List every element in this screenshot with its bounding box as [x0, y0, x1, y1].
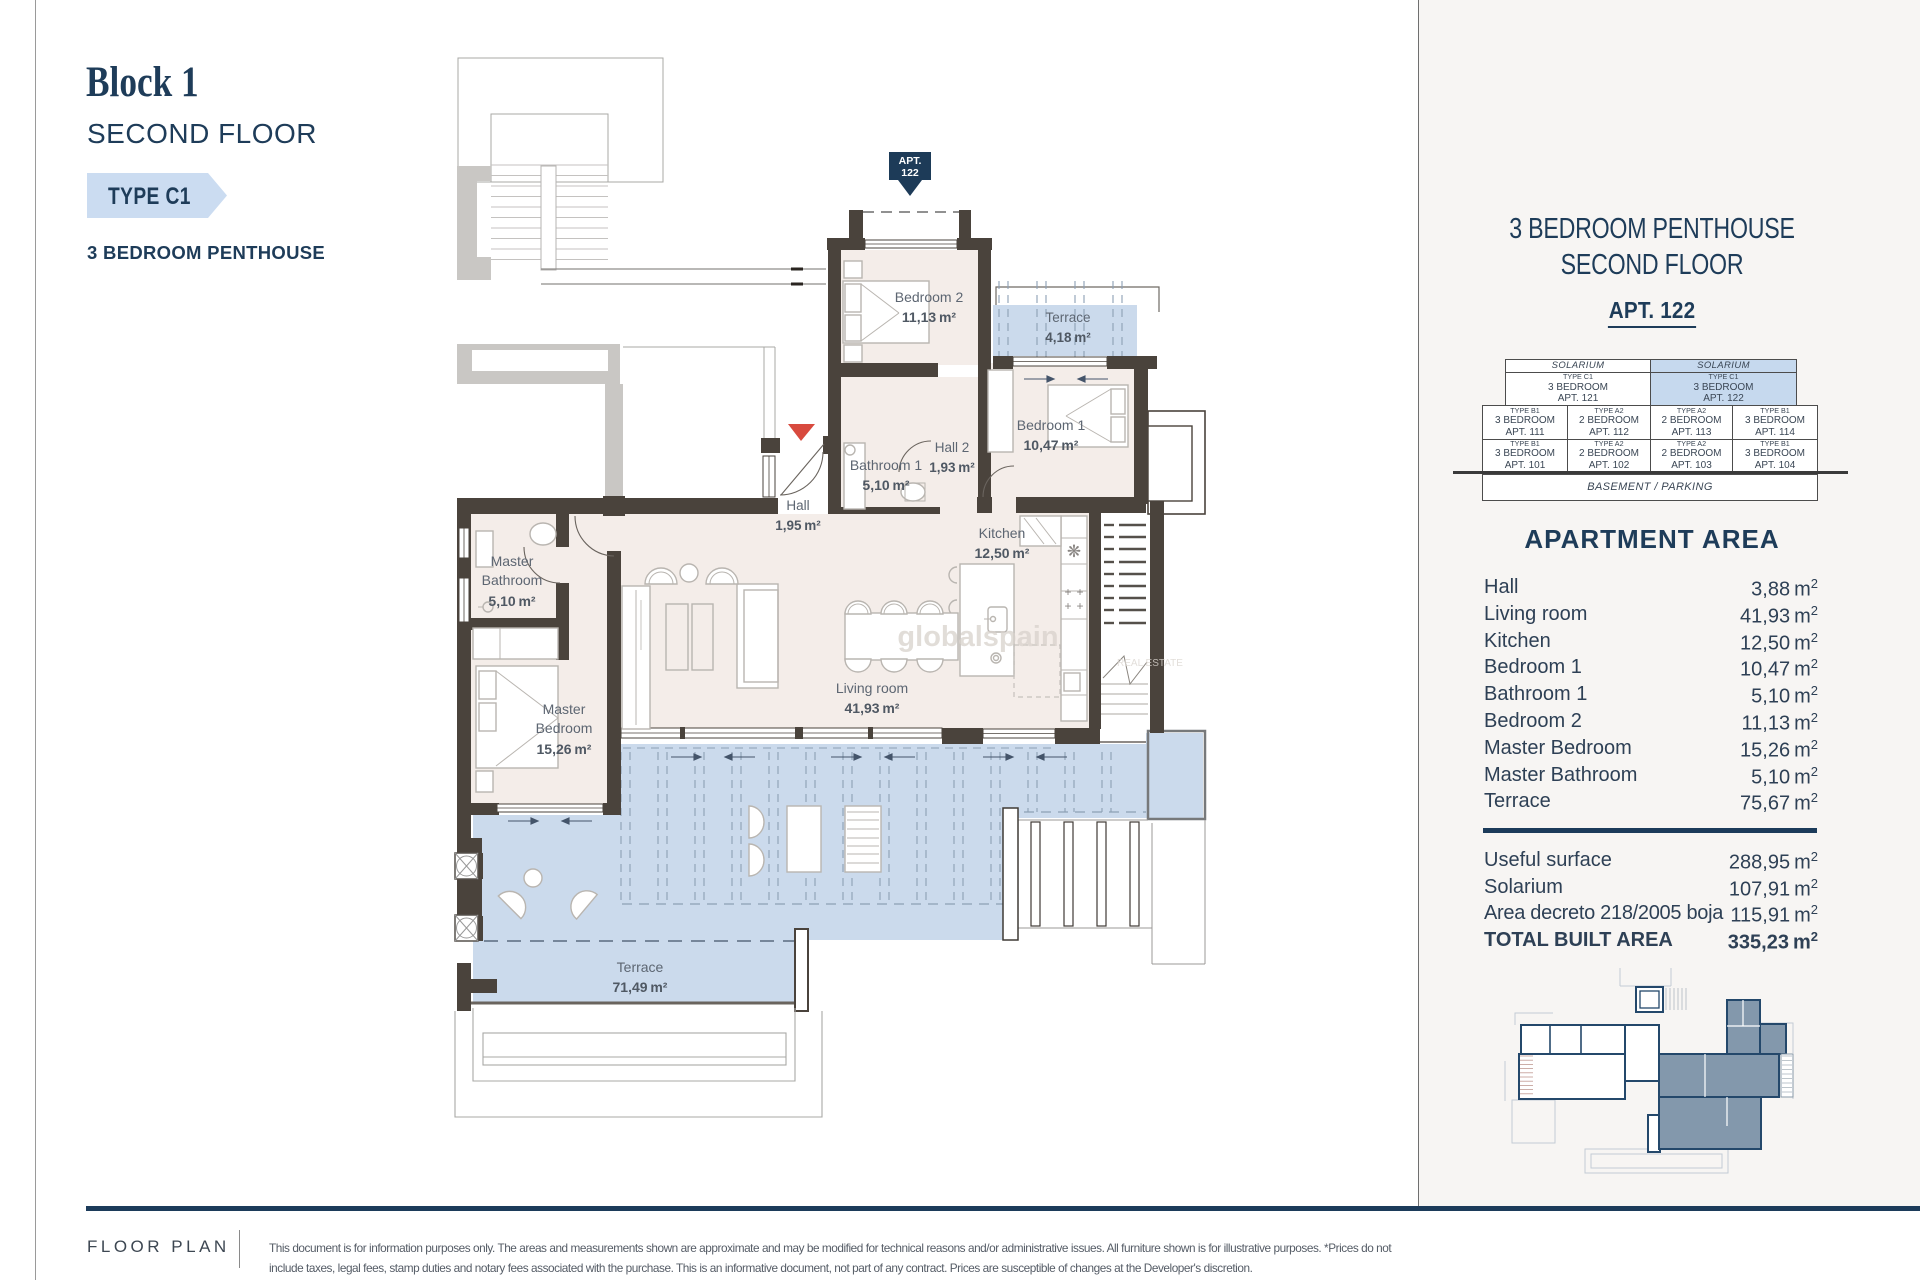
svg-text:41,93 m²: 41,93 m²: [845, 700, 900, 716]
svg-text:Bathroom 1: Bathroom 1: [850, 457, 923, 473]
svg-text:71,49 m²: 71,49 m²: [613, 979, 668, 995]
svg-text:Bedroom 1: Bedroom 1: [1017, 417, 1086, 433]
svg-text:1,95 m²: 1,95 m²: [775, 518, 821, 533]
svg-text:5,10 m²: 5,10 m²: [862, 477, 909, 493]
svg-text:Bathroom: Bathroom: [482, 572, 543, 588]
svg-text:15,26 m²: 15,26 m²: [537, 741, 592, 757]
svg-text:Hall: Hall: [786, 498, 809, 513]
svg-text:5,10 m²: 5,10 m²: [488, 593, 535, 609]
svg-text:Master: Master: [543, 701, 586, 717]
svg-text:globalspain: globalspain: [897, 621, 1058, 653]
svg-text:Kitchen: Kitchen: [979, 525, 1026, 541]
svg-text:122: 122: [901, 167, 919, 179]
svg-text:Terrace: Terrace: [617, 959, 664, 975]
svg-text:+: +: [1064, 599, 1071, 613]
svg-text:10,47 m²: 10,47 m²: [1024, 437, 1079, 453]
svg-text:REAL ESTATE: REAL ESTATE: [1117, 658, 1183, 669]
svg-text:Bedroom: Bedroom: [536, 720, 593, 736]
svg-text:+: +: [1076, 585, 1083, 599]
svg-text:11,13 m²: 11,13 m²: [902, 309, 957, 325]
svg-text:12,50 m²: 12,50 m²: [975, 545, 1030, 561]
svg-text:Living room: Living room: [836, 680, 908, 696]
svg-text:+: +: [1064, 585, 1071, 599]
svg-text:Hall 2: Hall 2: [935, 440, 970, 455]
svg-text:Bedroom 2: Bedroom 2: [895, 289, 964, 305]
svg-text:+: +: [1076, 599, 1083, 613]
svg-text:Master: Master: [491, 553, 534, 569]
svg-text:❋: ❋: [1067, 542, 1081, 561]
svg-text:Terrace: Terrace: [1045, 310, 1090, 325]
svg-text:APT.: APT.: [899, 155, 922, 167]
svg-text:1,93 m²: 1,93 m²: [929, 460, 975, 475]
svg-text:4,18 m²: 4,18 m²: [1045, 330, 1091, 345]
